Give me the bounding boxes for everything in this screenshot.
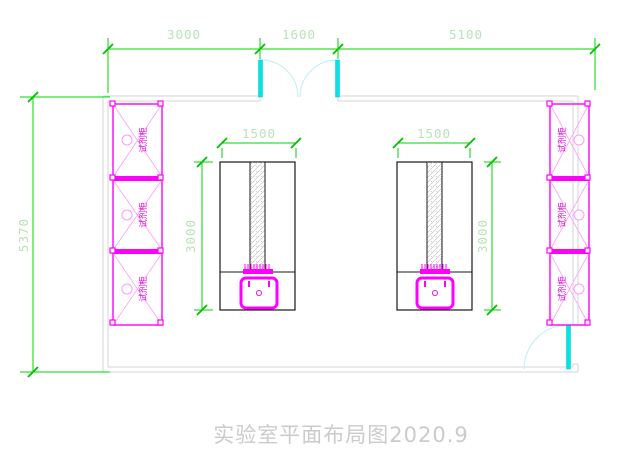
faucet-bar — [420, 269, 450, 274]
door-leaf-left — [259, 60, 263, 97]
cabinet-label: 试剂柜 — [138, 127, 149, 153]
cad-floorplan-canvas: 3000 1600 5100 5370 试剂柜 — [0, 0, 619, 469]
dim-text-bench-width: 1500 — [417, 126, 451, 141]
right-lab-bench: 1500 3000 — [393, 126, 501, 315]
dim-text-bench-depth: 3000 — [183, 219, 198, 253]
dim-text-bench-width: 1500 — [242, 126, 276, 141]
reagent-cabinet: 试剂柜 — [550, 253, 589, 325]
reagent-cabinet: 试剂柜 — [113, 180, 162, 250]
drawing-title: 实验室平面布局图2020.9 — [213, 423, 468, 447]
reagent-shelf-hatch — [427, 162, 442, 272]
floorplan-drawing: 3000 1600 5100 5370 试剂柜 — [0, 0, 619, 469]
dim-text-5100-top: 5100 — [449, 27, 483, 42]
side-door — [524, 325, 571, 369]
top-dimension: 3000 1600 5100 — [103, 27, 600, 93]
reagent-cabinet: 试剂柜 — [550, 180, 589, 250]
dim-text-1600-top: 1600 — [282, 27, 316, 42]
cabinet-divider — [550, 249, 589, 254]
door-swing-arc-right — [300, 60, 337, 97]
right-cabinet-column: 试剂柜 试剂柜 试剂柜 — [547, 101, 590, 325]
cabinet-label: 试剂柜 — [557, 276, 568, 302]
dim-text-bench-depth: 3000 — [475, 219, 490, 253]
left-cabinet-column: 试剂柜 试剂柜 试剂柜 — [110, 101, 163, 325]
door-swing-arc — [524, 325, 568, 369]
door-leaf — [567, 325, 571, 369]
cabinet-divider — [113, 249, 162, 254]
reagent-shelf-hatch — [250, 162, 265, 272]
room-walls — [103, 96, 578, 372]
cabinet-divider — [113, 176, 162, 181]
bench-width-dimension: 1500 — [393, 126, 475, 158]
entry-double-door — [259, 60, 340, 97]
dim-text-3000-top: 3000 — [167, 27, 201, 42]
reagent-cabinet: 试剂柜 — [113, 104, 162, 177]
dim-text-room-height: 5370 — [16, 218, 31, 252]
door-leaf-right — [336, 60, 340, 97]
bench-width-dimension: 1500 — [217, 126, 301, 158]
door-swing-arc-left — [261, 60, 298, 97]
cabinet-label: 试剂柜 — [557, 202, 568, 228]
left-dimension: 5370 — [16, 92, 110, 377]
left-lab-bench: 1500 3000 — [183, 126, 301, 315]
reagent-cabinet: 试剂柜 — [113, 253, 162, 325]
cabinet-label: 试剂柜 — [557, 127, 568, 153]
cabinet-divider — [550, 176, 589, 181]
cabinet-label: 试剂柜 — [138, 202, 149, 228]
bench-depth-dimension: 3000 — [475, 157, 501, 315]
reagent-cabinet: 试剂柜 — [550, 104, 589, 177]
cabinet-label: 试剂柜 — [138, 276, 149, 302]
faucet-bar — [243, 269, 273, 274]
bench-depth-dimension: 3000 — [183, 157, 213, 315]
